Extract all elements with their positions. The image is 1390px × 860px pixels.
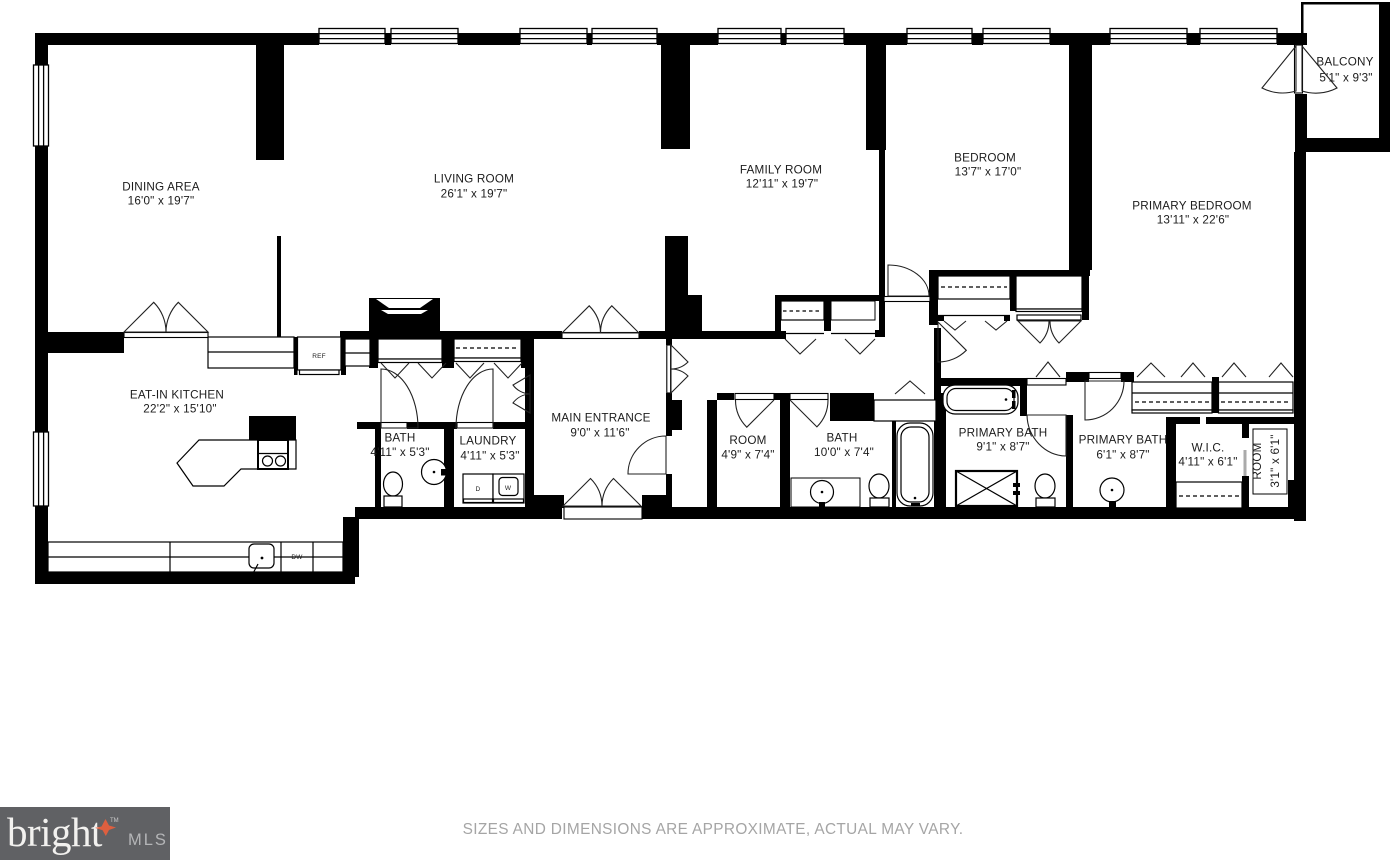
svg-text:BEDROOM: BEDROOM (954, 152, 1016, 165)
svg-text:D: D (476, 486, 481, 493)
svg-text:BATH: BATH (826, 432, 857, 445)
svg-text:PRIMARY BEDROOM: PRIMARY BEDROOM (1132, 200, 1251, 213)
svg-text:DINING AREA: DINING AREA (122, 181, 200, 194)
svg-text:W.I.C.: W.I.C. (1191, 442, 1224, 455)
svg-text:16'0" x 19'7": 16'0" x 19'7" (128, 195, 195, 208)
svg-text:6'1" x 8'7": 6'1" x 8'7" (1096, 449, 1149, 462)
svg-text:LIVING ROOM: LIVING ROOM (434, 173, 514, 186)
svg-text:PRIMARY BATH: PRIMARY BATH (1079, 434, 1168, 447)
svg-text:13'7" x 17'0": 13'7" x 17'0" (955, 166, 1022, 179)
svg-text:PRIMARY BATH: PRIMARY BATH (959, 427, 1048, 440)
svg-text:4'9" x 7'4": 4'9" x 7'4" (721, 449, 774, 462)
svg-text:22'2" x 15'10": 22'2" x 15'10" (143, 403, 216, 416)
svg-text:MAIN ENTRANCE: MAIN ENTRANCE (551, 412, 650, 425)
svg-text:10'0" x 7'4": 10'0" x 7'4" (814, 446, 874, 459)
svg-text:DW: DW (291, 554, 303, 561)
svg-text:4'11" x 5'3": 4'11" x 5'3" (460, 450, 519, 463)
svg-text:REF: REF (312, 353, 326, 360)
svg-text:FAMILY ROOM: FAMILY ROOM (740, 164, 822, 177)
svg-text:26'1" x 19'7": 26'1" x 19'7" (441, 188, 508, 201)
svg-text:W: W (505, 485, 512, 492)
svg-text:12'11" x 19'7": 12'11" x 19'7" (746, 178, 819, 191)
svg-text:ROOM: ROOM (729, 434, 766, 447)
svg-text:13'11" x 22'6": 13'11" x 22'6" (1157, 214, 1230, 227)
svg-text:5'1" x 9'3": 5'1" x 9'3" (1319, 72, 1372, 85)
svg-text:EAT-IN KITCHEN: EAT-IN KITCHEN (130, 389, 224, 402)
svg-text:MLS: MLS (128, 831, 168, 849)
svg-text:BATH: BATH (384, 432, 415, 445)
svg-text:3'1" x 6'1": 3'1" x 6'1" (1269, 434, 1282, 487)
svg-text:bright: bright (7, 809, 103, 855)
svg-text:9'1" x 8'7": 9'1" x 8'7" (976, 441, 1029, 454)
svg-text:ROOM: ROOM (1251, 442, 1264, 479)
svg-text:9'0" x 11'6": 9'0" x 11'6" (570, 427, 629, 440)
svg-text:BALCONY: BALCONY (1316, 56, 1373, 69)
svg-text:TM: TM (110, 818, 119, 824)
svg-text:SIZES AND DIMENSIONS ARE APPRO: SIZES AND DIMENSIONS ARE APPROXIMATE, AC… (463, 821, 964, 838)
svg-text:LAUNDRY: LAUNDRY (459, 435, 516, 448)
svg-text:4'11" x 5'3": 4'11" x 5'3" (370, 446, 429, 459)
svg-text:4'11" x 6'1": 4'11" x 6'1" (1178, 456, 1237, 469)
